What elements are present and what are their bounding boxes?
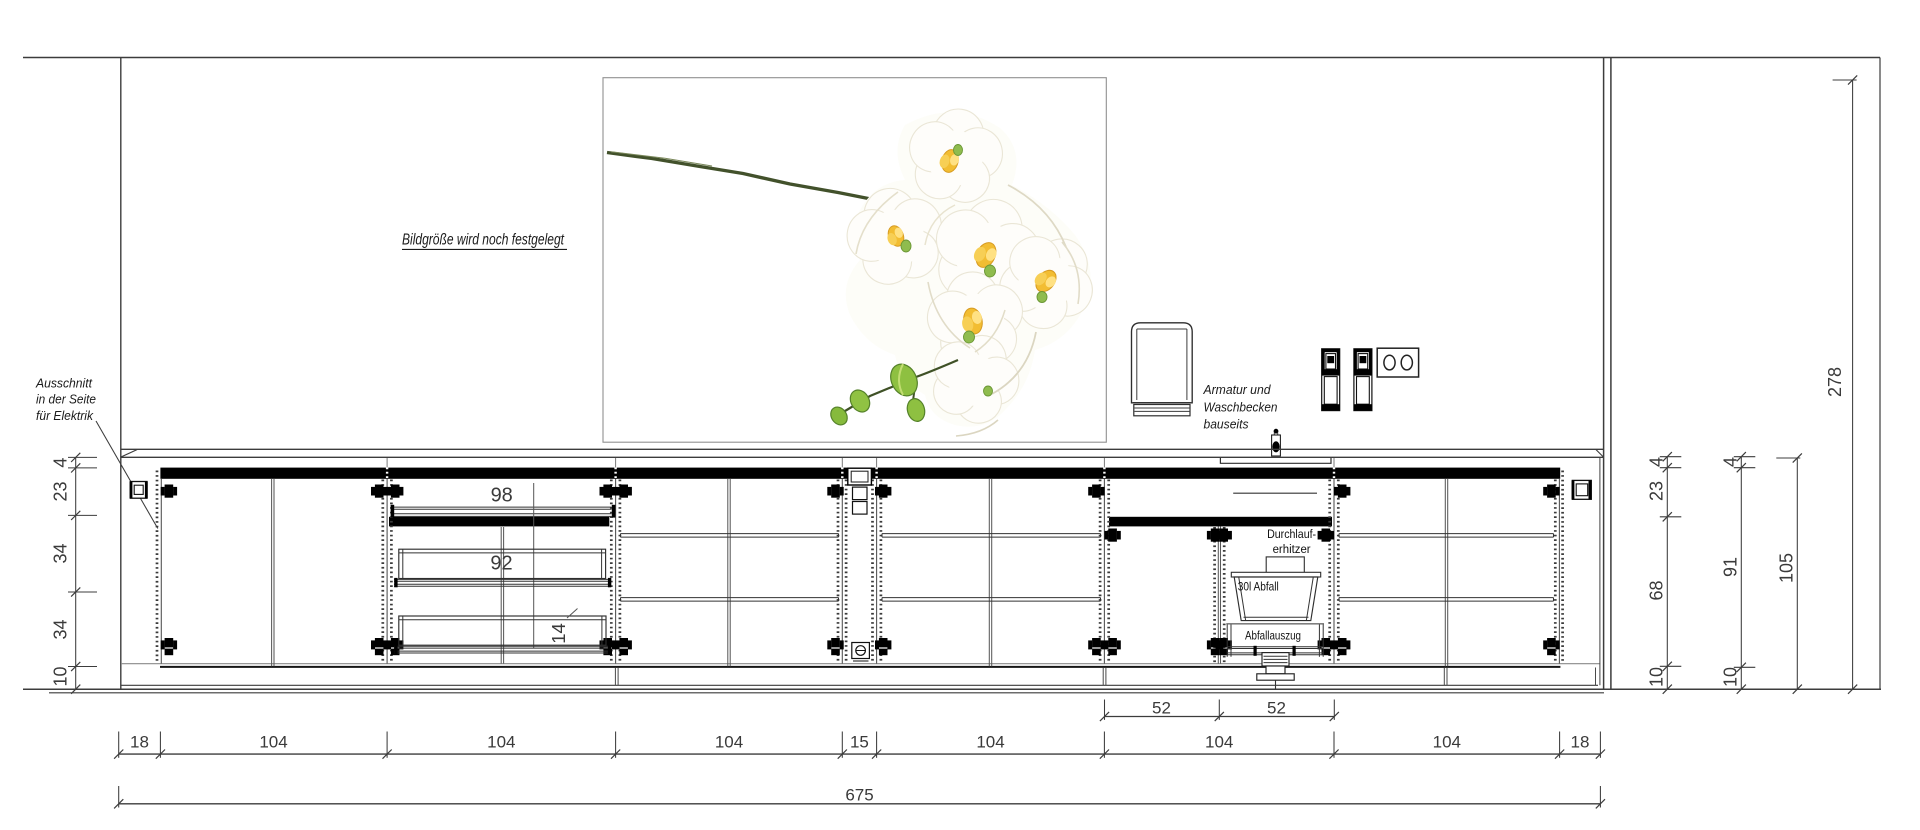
svg-text:105: 105 (1777, 553, 1797, 583)
svg-text:erhitzer: erhitzer (1273, 542, 1311, 556)
svg-text:4: 4 (1647, 457, 1667, 467)
svg-text:23: 23 (51, 481, 71, 501)
svg-text:34: 34 (51, 543, 71, 563)
svg-text:10: 10 (1647, 667, 1667, 687)
svg-text:10: 10 (1721, 667, 1741, 687)
svg-text:Durchlauf-: Durchlauf- (1267, 527, 1316, 541)
svg-text:Ausschnitt: Ausschnitt (35, 376, 93, 391)
svg-text:4: 4 (51, 458, 71, 468)
svg-text:23: 23 (1647, 481, 1667, 501)
svg-text:104: 104 (1433, 732, 1461, 751)
svg-text:Armatur und: Armatur und (1203, 382, 1272, 397)
svg-text:15: 15 (850, 732, 869, 751)
svg-text:104: 104 (976, 732, 1004, 751)
svg-text:4: 4 (1721, 457, 1741, 467)
svg-text:52: 52 (1267, 699, 1286, 718)
svg-text:68: 68 (1647, 580, 1667, 600)
svg-text:92: 92 (490, 552, 512, 574)
svg-text:104: 104 (1205, 732, 1233, 751)
svg-text:30l Abfall: 30l Abfall (1238, 580, 1279, 594)
svg-text:98: 98 (491, 485, 513, 507)
svg-text:18: 18 (1571, 732, 1590, 751)
svg-text:bauseits: bauseits (1204, 417, 1249, 432)
svg-text:91: 91 (1721, 557, 1741, 577)
svg-text:18: 18 (130, 732, 149, 751)
svg-text:Abfallauszug: Abfallauszug (1245, 628, 1301, 642)
svg-text:278: 278 (1825, 367, 1845, 397)
svg-text:in der Seite: in der Seite (36, 392, 96, 407)
svg-text:52: 52 (1152, 699, 1171, 718)
svg-text:10: 10 (51, 666, 71, 686)
svg-text:104: 104 (715, 732, 743, 751)
svg-text:Bildgröße wird noch festgelegt: Bildgröße wird noch festgelegt (402, 232, 565, 249)
svg-text:34: 34 (51, 619, 71, 639)
svg-text:für Elektrik: für Elektrik (36, 408, 94, 423)
svg-text:104: 104 (259, 732, 287, 751)
svg-text:675: 675 (845, 785, 873, 804)
svg-text:14: 14 (548, 623, 569, 644)
svg-text:Waschbecken: Waschbecken (1204, 399, 1278, 414)
svg-text:104: 104 (487, 732, 515, 751)
